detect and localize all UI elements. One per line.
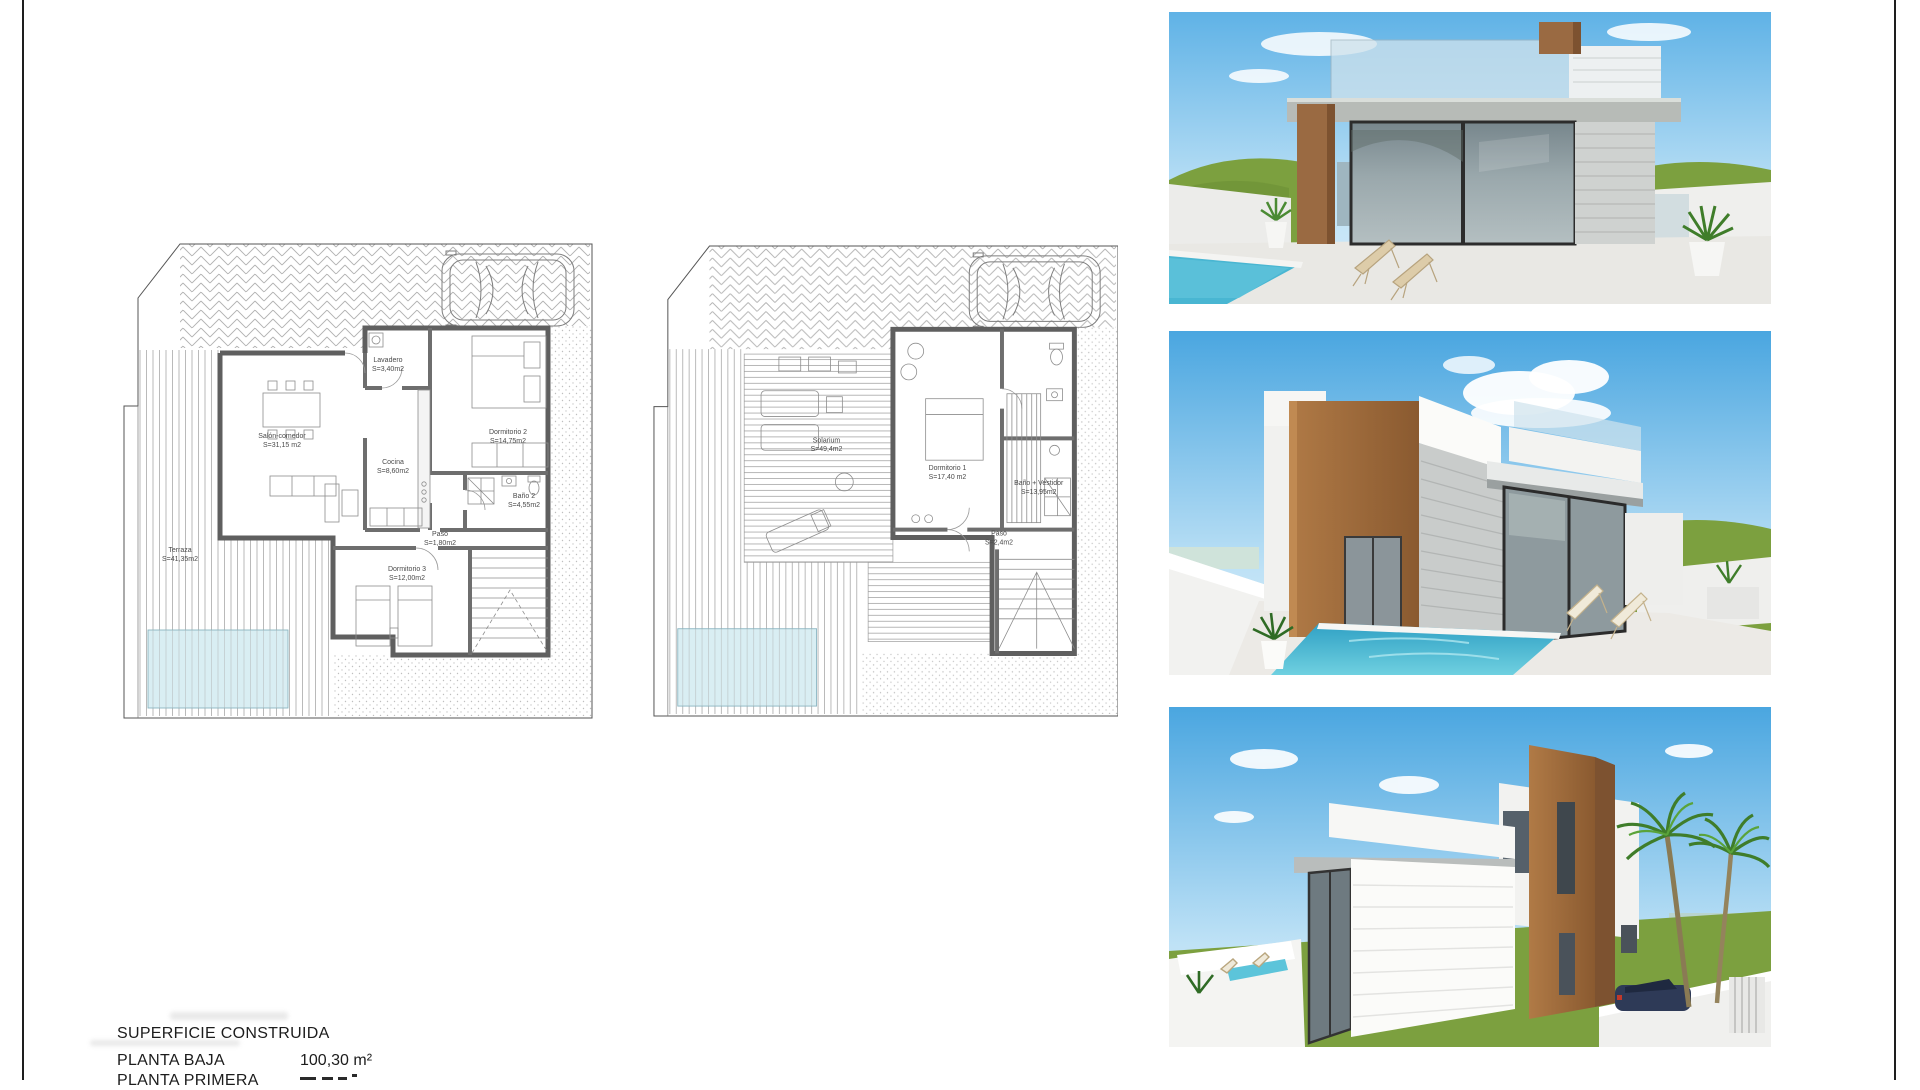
ground-floor-plan-svg: Salón-comedor S=31,15 m2 Cocina S=8,60m2… — [120, 238, 598, 724]
corner-glass-window — [1504, 487, 1625, 643]
side-window — [1337, 162, 1351, 226]
summary-title: SUPERFICIE CONSTRUIDA — [117, 1025, 330, 1043]
room-label: Dormitorio 1 — [929, 465, 967, 472]
side-white-volume — [1625, 513, 1683, 605]
room-area: S=4,55m2 — [508, 502, 540, 509]
room-label: Cocina — [382, 459, 404, 466]
tower-glass-door — [1345, 537, 1401, 633]
tower-slot-window-lower — [1559, 933, 1575, 995]
wood-tower — [1529, 745, 1615, 1019]
render2-svg — [1169, 331, 1771, 675]
render1-svg — [1169, 12, 1771, 304]
room-label: Dormitorio 3 — [388, 566, 426, 573]
room-label: Lavadero — [373, 357, 402, 364]
gravel-strip-right — [1074, 327, 1118, 714]
gravel-strip-right — [548, 326, 592, 716]
room-label: Baño 2 — [513, 493, 535, 500]
glass-sliding-doors — [1351, 122, 1575, 244]
villa-building — [1264, 391, 1683, 643]
room-area: S=13,95m2 — [1021, 489, 1057, 496]
room-area: S=31,15 m2 — [263, 442, 301, 449]
gravel-strip-bottom — [333, 655, 548, 716]
room-area: S=2,4m2 — [985, 539, 1013, 546]
gravel-strip-bottom — [861, 654, 1074, 714]
drawing-sheet: { "sheet": { "type": "architectural-pres… — [0, 0, 1920, 1080]
side-small-window — [1621, 925, 1637, 953]
room-label: Baño + Vestidor — [1014, 480, 1064, 487]
room-area: S=8,60m2 — [377, 468, 409, 475]
roof-parapet — [1569, 46, 1661, 102]
scan-smudge — [170, 1012, 288, 1020]
sheet-border-right — [1894, 0, 1896, 1080]
room-label: Salón-comedor — [258, 433, 306, 440]
villa-corner-pool-render — [1169, 331, 1771, 675]
room-area: S=12,00m2 — [389, 575, 425, 582]
room-label: Paso — [991, 531, 1007, 538]
tower-slot-window — [1557, 802, 1575, 894]
room-area: S=3,40m2 — [372, 366, 404, 373]
room-area: S=49,4m2 — [811, 446, 843, 453]
sheet-border-left — [22, 0, 24, 1080]
clipped-value-mark — [352, 1074, 357, 1077]
room-area: S=14,75m2 — [490, 438, 526, 445]
summary-row-value: 100,30 m² — [300, 1052, 372, 1070]
villa-street-side-render — [1169, 707, 1771, 1047]
room-area: S=41,35m2 — [162, 556, 198, 563]
render3-svg — [1169, 707, 1771, 1047]
villa-front-pool-terrace-render — [1169, 12, 1771, 304]
summary-row-label: PLANTA PRIMERA — [117, 1072, 259, 1090]
room-label: Terraza — [168, 547, 191, 554]
roof-slab — [1287, 100, 1681, 122]
ground-floor-plan: Salón-comedor S=31,15 m2 Cocina S=8,60m2… — [120, 238, 598, 724]
room-label: Paso — [432, 531, 448, 538]
solarium-deck-lower — [868, 562, 992, 641]
summary-row-label: PLANTA BAJA — [117, 1052, 225, 1070]
pool-plan — [148, 630, 288, 708]
grey-slat-wall — [1575, 122, 1655, 244]
left-pool-terrace — [1169, 939, 1305, 1047]
room-label: Solarium — [813, 437, 841, 444]
room-area: S=17,40 m2 — [929, 474, 967, 481]
first-floor-plan: Solarium S=49,4m2 Dormitorio 1 S=17,40 m… — [650, 238, 1118, 724]
corner-glass-window — [1309, 869, 1351, 1043]
pool-plan — [678, 629, 817, 706]
room-label: Dormitorio 2 — [489, 429, 527, 436]
room-area: S=1,80m2 — [424, 540, 456, 547]
first-floor-plan-svg: Solarium S=49,4m2 Dormitorio 1 S=17,40 m… — [650, 238, 1118, 724]
white-slat-face — [1351, 859, 1515, 1037]
